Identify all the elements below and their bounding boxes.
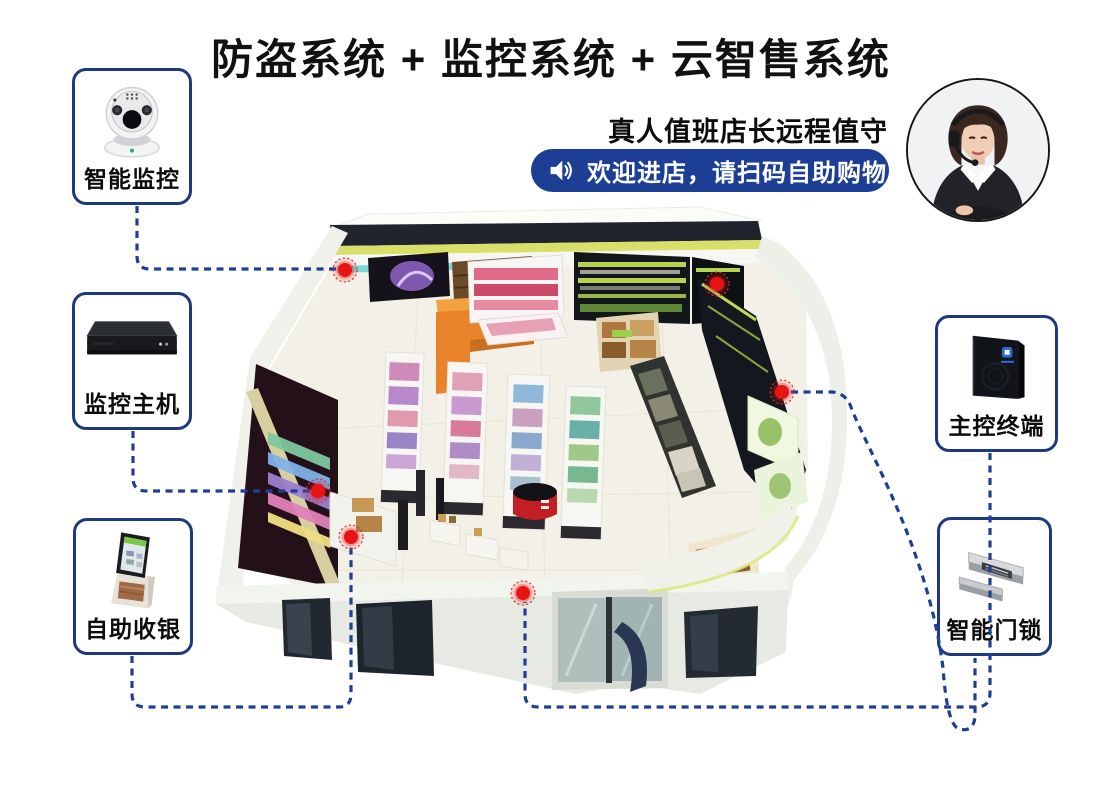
shopkeeper-portrait: [906, 78, 1050, 222]
panel-monitor-host: 监控主机: [72, 292, 192, 430]
panel-label: 自助收银: [85, 610, 181, 644]
panel-smart-lock: 智能门锁: [937, 517, 1052, 656]
magnetic-lock-icon: [948, 528, 1042, 611]
panel-label: 智能监控: [84, 160, 180, 194]
left-wall-display: [238, 364, 346, 604]
panel-label: 主控终端: [949, 407, 1045, 441]
panel-label: 监控主机: [84, 385, 180, 419]
control-terminal-icon: [951, 326, 1043, 407]
shopkeeper-illustration: [908, 80, 1048, 220]
duty-caption: 真人值班店长远程值守: [608, 110, 888, 149]
front-wall: [216, 572, 788, 694]
announcement-pill: 欢迎进店，请扫码自助购物: [531, 149, 889, 192]
red-drum-table: [513, 483, 557, 520]
announcement-text: 欢迎进店，请扫码自助购物: [587, 153, 887, 188]
pink-display-wall: [468, 255, 568, 345]
dome-camera-icon: [88, 79, 176, 160]
infographic-canvas: 防盗系统 + 监控系统 + 云智售系统 真人值班店长远程值守 欢迎进店，请扫码自…: [0, 0, 1102, 793]
panel-label: 智能门锁: [947, 611, 1043, 645]
entrance-door: [552, 588, 668, 690]
panel-smart-camera: 智能监控: [72, 68, 192, 205]
dvr-host-icon: [81, 303, 183, 369]
speaker-icon: [547, 157, 574, 184]
checkout-kiosk-icon: [91, 529, 175, 610]
panel-self-checkout: 自助收银: [73, 518, 193, 655]
panel-control-terminal: 主控终端: [935, 315, 1058, 452]
